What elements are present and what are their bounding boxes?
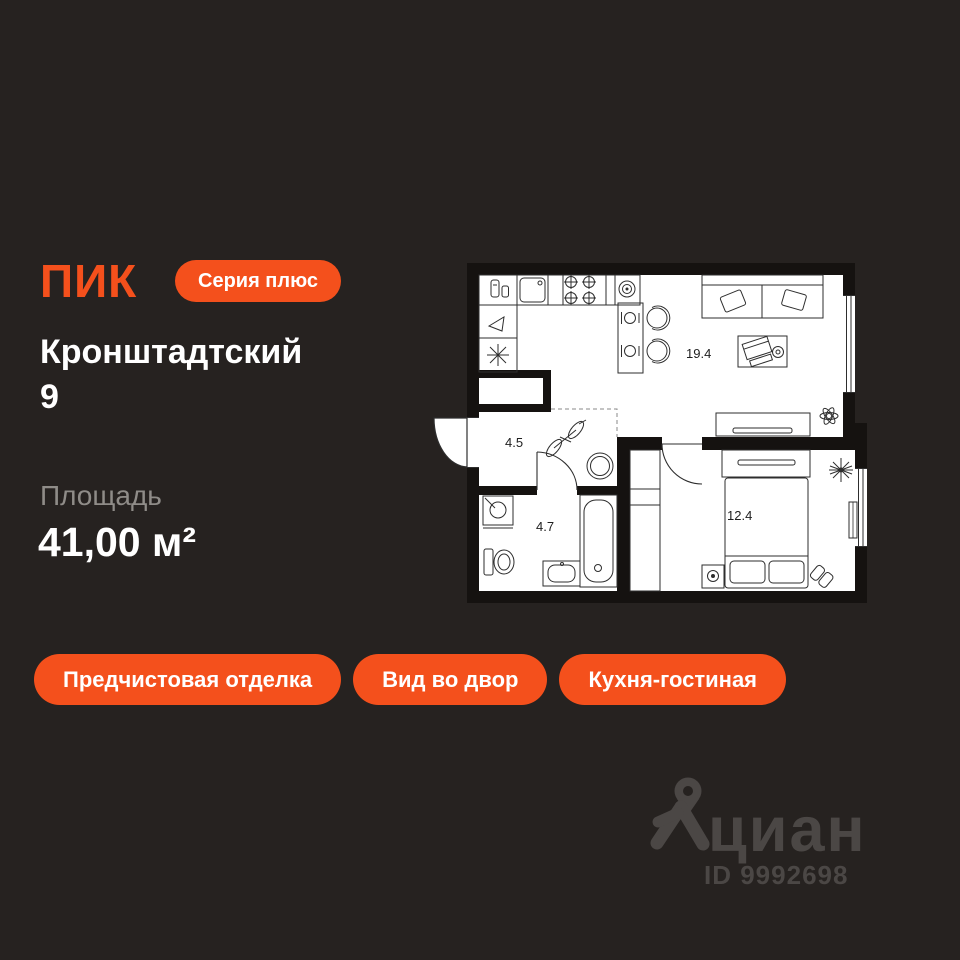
floorplan: 19.4 4.5 4.7 12.4	[433, 255, 876, 607]
room-label-kitchen-living: 19.4	[686, 346, 711, 361]
room-label-hallway: 4.5	[505, 435, 523, 450]
series-plus-badge: Серия плюс	[175, 260, 341, 302]
area-label: Площадь	[40, 479, 162, 513]
room-label-bathroom: 4.7	[536, 519, 554, 534]
feature-badge-kitchen: Кухня-гостиная	[559, 654, 786, 705]
project-title: Кронштадтский 9	[40, 330, 302, 420]
listing-id: ID 9992698	[704, 860, 848, 891]
entrance-door-arc	[434, 418, 467, 467]
feature-badge-view: Вид во двор	[353, 654, 547, 705]
building-number: 9	[40, 375, 302, 420]
room-label-bedroom: 12.4	[727, 508, 752, 523]
wardrobe	[630, 450, 660, 591]
feature-badges: Предчистовая отделка Вид во двор Кухня-г…	[34, 654, 786, 705]
area-value: 41,00 м²	[38, 518, 196, 567]
radiator-icon	[849, 502, 857, 538]
pik-logo: ПИК	[40, 258, 137, 304]
feature-badge-finish: Предчистовая отделка	[34, 654, 341, 705]
snowflake-icon	[487, 344, 509, 366]
project-name: Кронштадтский	[40, 330, 302, 375]
cian-logo-text: циан	[708, 799, 867, 862]
floor-base	[467, 263, 867, 603]
